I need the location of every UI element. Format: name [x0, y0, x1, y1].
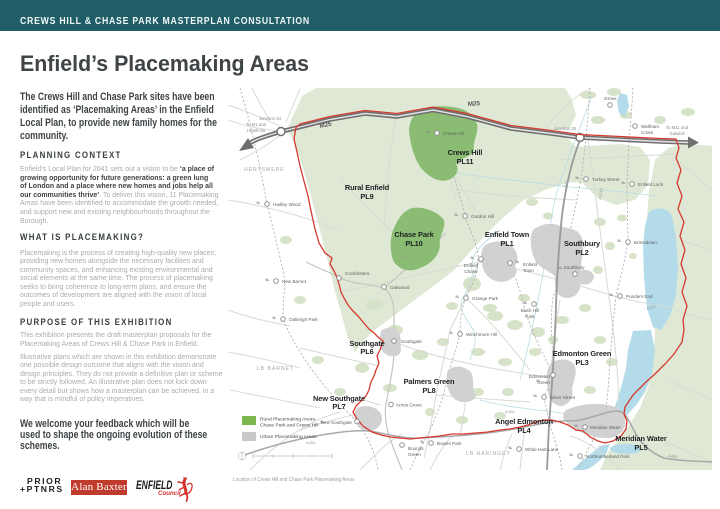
svg-text:Gordon Hill: Gordon Hill — [471, 214, 494, 219]
svg-text:Silver Street: Silver Street — [550, 395, 576, 400]
svg-text:To M11 and: To M11 and — [666, 125, 689, 130]
svg-text:Arnos Grove: Arnos Grove — [396, 403, 422, 408]
svg-text:PL2: PL2 — [575, 248, 588, 257]
svg-text:Southbury: Southbury — [564, 265, 586, 270]
svg-text:Grove: Grove — [604, 96, 617, 101]
svg-text:Urban Placemaking Areas: Urban Placemaking Areas — [260, 434, 317, 440]
svg-text:Crews Hill: Crews Hill — [448, 148, 483, 157]
svg-text:Bowes Park: Bowes Park — [437, 441, 462, 446]
svg-text:Cockfosters: Cockfosters — [345, 271, 370, 276]
svg-text:Crews Hill: Crews Hill — [443, 131, 464, 136]
svg-text:New Southgate: New Southgate — [321, 420, 353, 425]
svg-text:Bounds: Bounds — [408, 446, 424, 451]
svg-text:Oakleigh Park: Oakleigh Park — [289, 317, 319, 322]
svg-text:LB HARINGEY: LB HARINGEY — [466, 451, 511, 457]
svg-text:PL3: PL3 — [575, 358, 588, 367]
svg-text:Hadley Wood: Hadley Wood — [273, 202, 301, 207]
svg-text:Winchmore Hill: Winchmore Hill — [466, 332, 497, 337]
svg-text:Gatwick: Gatwick — [669, 131, 685, 136]
svg-text:Enfield Town: Enfield Town — [485, 230, 530, 239]
svg-text:Chase: Chase — [464, 269, 478, 274]
svg-text:PL11: PL11 — [457, 157, 474, 166]
svg-text:Enfield Lock: Enfield Lock — [638, 182, 664, 187]
svg-text:PL10: PL10 — [405, 239, 422, 248]
svg-text:Rural Placemaking Areas-: Rural Placemaking Areas- — [260, 417, 317, 423]
svg-text:Turkey Street: Turkey Street — [592, 177, 620, 182]
svg-text:To M1 and: To M1 and — [246, 122, 267, 127]
svg-text:PL6: PL6 — [360, 347, 373, 356]
svg-text:A406: A406 — [306, 440, 316, 445]
svg-text:A406: A406 — [505, 409, 515, 414]
svg-text:Town: Town — [523, 268, 534, 273]
svg-text:Brimsdown: Brimsdown — [634, 240, 657, 245]
svg-text:Enfield: Enfield — [464, 263, 478, 268]
svg-text:PL1: PL1 — [500, 239, 513, 248]
svg-text:Green: Green — [537, 380, 550, 385]
svg-text:Bush Hill: Bush Hill — [521, 308, 539, 313]
svg-text:Palmers Green: Palmers Green — [404, 377, 455, 386]
svg-text:PL5: PL5 — [634, 443, 647, 452]
svg-text:Angel Edmonton: Angel Edmonton — [495, 417, 553, 426]
svg-text:New Barnet: New Barnet — [282, 279, 307, 284]
svg-text:PL7: PL7 — [332, 402, 345, 411]
svg-text:Waltham: Waltham — [641, 124, 659, 129]
svg-text:Chase Park and Crews Hill: Chase Park and Crews Hill — [260, 422, 318, 428]
svg-text:Rural Enfield: Rural Enfield — [345, 183, 390, 192]
svg-text:Green: Green — [408, 452, 421, 457]
svg-text:White Hart Lane: White Hart Lane — [525, 447, 559, 452]
svg-text:Heathrow: Heathrow — [247, 128, 266, 133]
svg-text:Grange Park: Grange Park — [472, 296, 499, 301]
svg-text:Cross: Cross — [641, 130, 654, 135]
svg-text:Edmonton: Edmonton — [529, 374, 550, 379]
svg-text:Junction 25: Junction 25 — [554, 126, 577, 131]
svg-text:Edmonton Green: Edmonton Green — [553, 349, 612, 358]
svg-text:Meridian Water: Meridian Water — [590, 425, 621, 430]
svg-text:HERTSMERE: HERTSMERE — [244, 167, 285, 173]
svg-text:Southbury: Southbury — [564, 239, 601, 248]
svg-text:Southgate: Southgate — [401, 339, 422, 344]
svg-text:Meridian Water: Meridian Water — [615, 434, 667, 443]
svg-text:LB BARNET: LB BARNET — [257, 366, 294, 372]
svg-text:PL9: PL9 — [360, 192, 373, 201]
svg-text:Enfield: Enfield — [523, 262, 537, 267]
svg-text:PL4: PL4 — [517, 426, 531, 435]
svg-text:Northumberland Park: Northumberland Park — [586, 454, 630, 459]
svg-text:Oakwood: Oakwood — [390, 285, 410, 290]
svg-text:PL8: PL8 — [422, 386, 435, 395]
svg-text:Park: Park — [525, 314, 535, 319]
svg-text:Chase Park: Chase Park — [394, 230, 434, 239]
svg-text:Ponders End: Ponders End — [626, 294, 653, 299]
svg-text:A110: A110 — [402, 255, 412, 260]
svg-text:Junction 24: Junction 24 — [259, 116, 282, 121]
svg-text:M25: M25 — [468, 100, 481, 108]
